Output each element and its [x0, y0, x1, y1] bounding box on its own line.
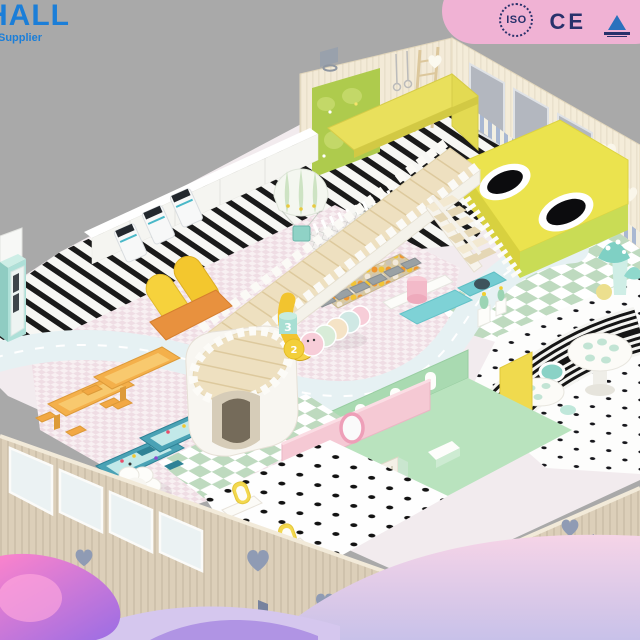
ce-mark: CE: [549, 7, 586, 37]
number-block-three: 3: [279, 312, 297, 334]
supplier-logo: HALL Supplier: [0, 0, 70, 44]
playground-product-image: 3 2 ISO CE: [0, 0, 640, 640]
logo-text: HALL: [0, 0, 70, 32]
vending-kiosk: [0, 228, 26, 342]
certification-ribbon: ISO CE: [442, 0, 640, 44]
number-block-two: 2: [284, 339, 304, 359]
logo-tagline: Supplier: [0, 32, 70, 44]
round-mirror: [341, 414, 363, 442]
iso-badge: ISO: [499, 3, 533, 37]
svg-text:3: 3: [284, 321, 292, 334]
iso-label: ISO: [506, 14, 526, 26]
stool: [560, 405, 576, 415]
castle-tower: [183, 318, 300, 457]
triangle-cert-icon: [608, 15, 626, 30]
svg-text:2: 2: [291, 345, 298, 356]
isometric-scene: 3 2: [0, 0, 640, 640]
triangle-cert-badge: [602, 15, 632, 38]
